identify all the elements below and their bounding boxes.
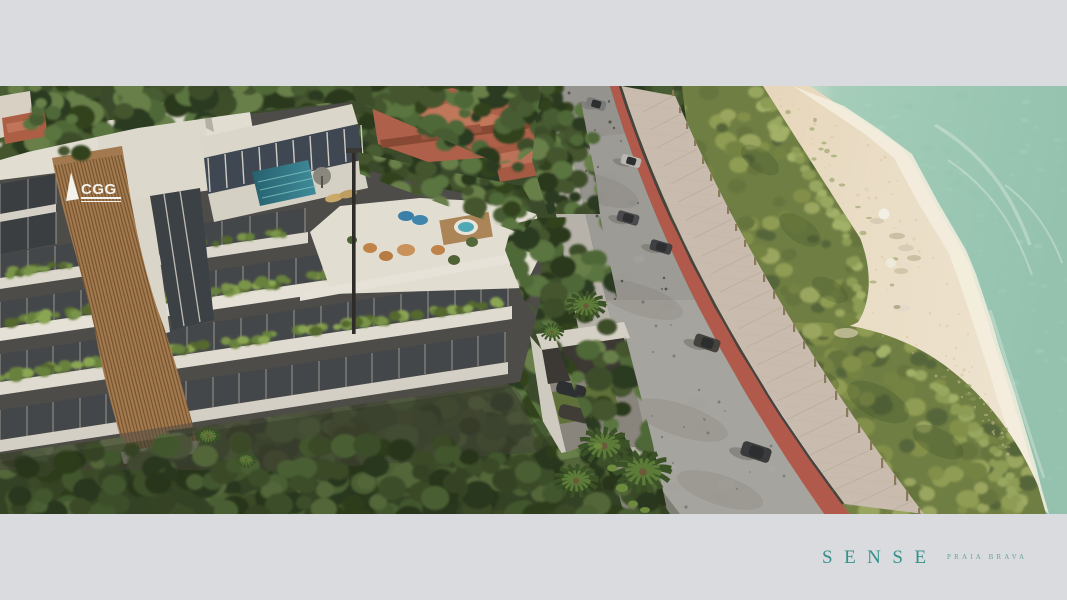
svg-text:CGG: CGG <box>81 181 117 198</box>
svg-text:SENSE: SENSE <box>822 547 938 568</box>
svg-text:PRAIA BRAVA: PRAIA BRAVA <box>947 553 1027 561</box>
